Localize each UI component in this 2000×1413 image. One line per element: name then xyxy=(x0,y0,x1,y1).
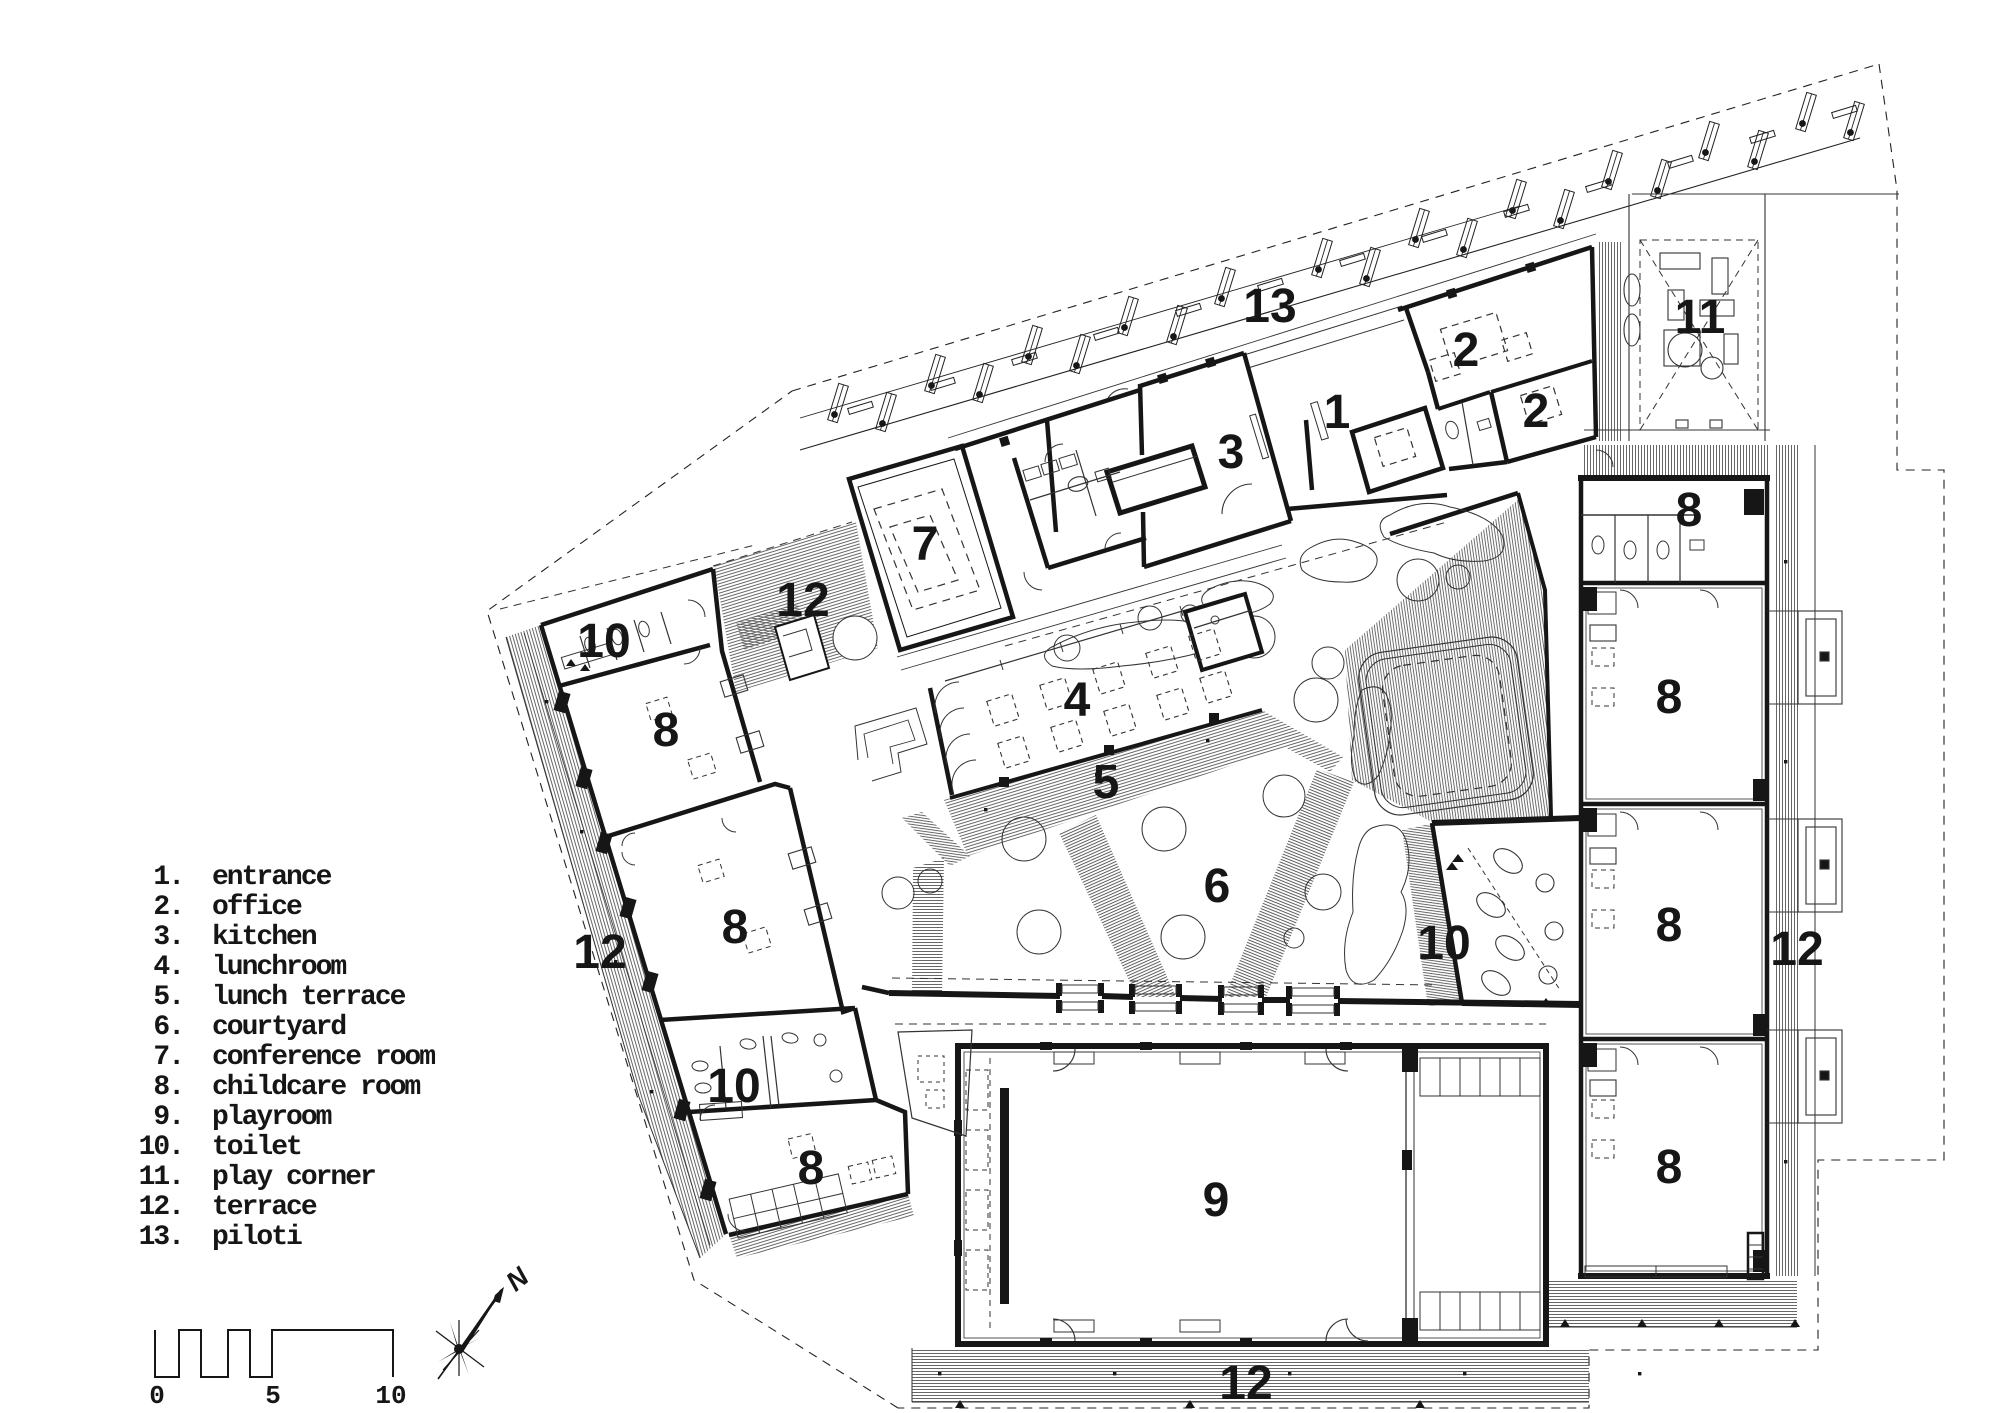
svg-text:8: 8 xyxy=(722,901,749,954)
svg-text:piloti: piloti xyxy=(212,1222,302,1253)
svg-text:kitchen: kitchen xyxy=(212,922,317,953)
svg-text:play corner: play corner xyxy=(212,1162,375,1193)
svg-text:12: 12 xyxy=(1770,923,1823,976)
svg-text:12: 12 xyxy=(1219,1357,1272,1410)
svg-text:childcare room: childcare room xyxy=(212,1072,420,1103)
svg-text:terrace: terrace xyxy=(212,1192,317,1223)
svg-text:3.: 3. xyxy=(153,922,183,953)
svg-text:5: 5 xyxy=(265,1381,281,1411)
svg-text:8.: 8. xyxy=(153,1072,183,1103)
svg-text:1.: 1. xyxy=(153,862,183,893)
svg-text:lunchroom: lunchroom xyxy=(212,952,346,983)
svg-text:10: 10 xyxy=(707,1060,760,1113)
svg-text:8: 8 xyxy=(798,1142,825,1195)
svg-text:12: 12 xyxy=(573,926,626,979)
svg-text:13.: 13. xyxy=(139,1222,183,1253)
svg-text:2: 2 xyxy=(1523,385,1550,438)
svg-text:8: 8 xyxy=(1656,671,1683,724)
svg-text:10.: 10. xyxy=(139,1132,183,1163)
svg-text:playroom: playroom xyxy=(212,1102,332,1133)
svg-text:7: 7 xyxy=(912,518,939,571)
svg-text:8: 8 xyxy=(1656,899,1683,952)
svg-text:toilet: toilet xyxy=(212,1132,301,1163)
svg-text:4.: 4. xyxy=(153,952,183,983)
svg-text:10: 10 xyxy=(1417,917,1470,970)
svg-text:lunch terrace: lunch terrace xyxy=(212,982,406,1013)
svg-text:5.: 5. xyxy=(153,982,183,1013)
svg-text:8: 8 xyxy=(653,704,680,757)
svg-text:6.: 6. xyxy=(153,1012,183,1043)
svg-text:8: 8 xyxy=(1656,1141,1683,1194)
svg-text:office: office xyxy=(212,892,302,923)
svg-text:5: 5 xyxy=(1093,756,1120,809)
svg-text:10: 10 xyxy=(375,1381,406,1411)
svg-text:7.: 7. xyxy=(153,1042,183,1073)
svg-text:9.: 9. xyxy=(153,1102,183,1133)
svg-text:12: 12 xyxy=(776,574,829,627)
svg-text:entrance: entrance xyxy=(212,862,332,893)
svg-text:12.: 12. xyxy=(139,1192,183,1223)
svg-text:13: 13 xyxy=(1243,280,1296,333)
svg-text:9: 9 xyxy=(1203,1174,1230,1227)
svg-text:2: 2 xyxy=(1453,324,1480,377)
svg-text:1: 1 xyxy=(1324,386,1351,439)
svg-text:11: 11 xyxy=(1675,291,1726,344)
svg-text:courtyard: courtyard xyxy=(212,1012,345,1043)
svg-text:10: 10 xyxy=(577,615,630,668)
svg-text:0: 0 xyxy=(149,1381,165,1411)
svg-text:2.: 2. xyxy=(153,892,183,923)
svg-text:6: 6 xyxy=(1204,860,1231,913)
svg-text:4: 4 xyxy=(1064,674,1091,727)
svg-text:conference room: conference room xyxy=(212,1042,435,1073)
svg-text:8: 8 xyxy=(1676,484,1703,537)
svg-text:11.: 11. xyxy=(139,1162,183,1193)
svg-text:3: 3 xyxy=(1218,426,1245,479)
